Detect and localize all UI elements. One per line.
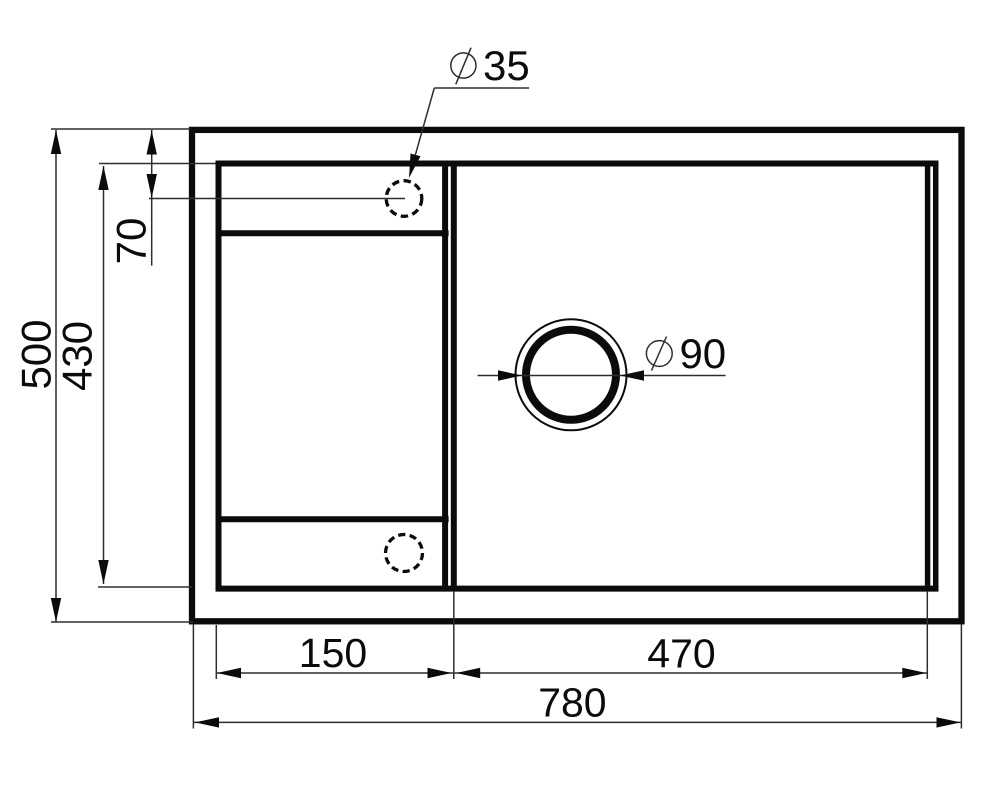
svg-text:70: 70 [108, 218, 155, 265]
svg-text:150: 150 [299, 630, 367, 676]
svg-text:780: 780 [538, 680, 606, 726]
svg-text:35: 35 [483, 42, 530, 89]
svg-text:430: 430 [54, 321, 101, 391]
svg-text:470: 470 [647, 631, 715, 677]
svg-text:500: 500 [13, 319, 60, 389]
svg-text:90: 90 [679, 330, 726, 377]
